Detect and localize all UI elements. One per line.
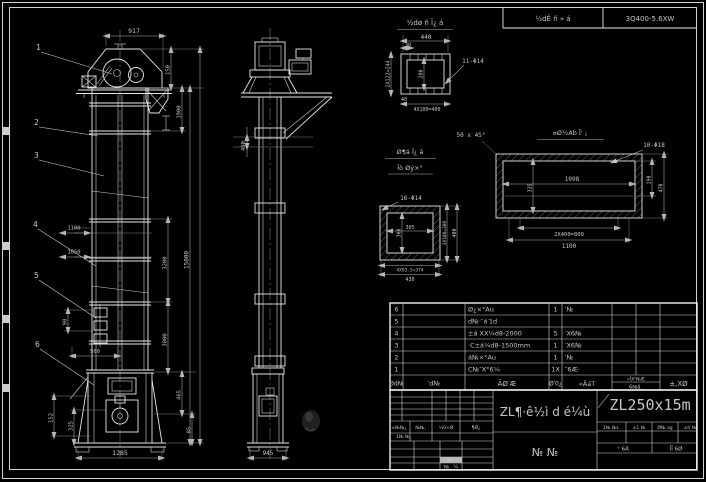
title-block-middle: ZL¶·ê½ì d é¼ù № № — [493, 405, 597, 459]
bom-material: ′X6№ — [565, 342, 582, 350]
detail-square-title-2: Īò Øý×° — [397, 163, 423, 172]
dim-mid-1: 3200 — [163, 256, 169, 269]
dim-flange-offset: 30 — [405, 43, 411, 49]
dim-side-base-width: 945 — [263, 450, 274, 457]
bom-row: 6 Ø¿×°Au 1 ′№ — [394, 306, 573, 314]
dim-square-holes-v: 3X100=300 — [442, 221, 448, 246]
cad-drawing: ½dÊ ñ » á 3Q400-5.6XW — [0, 0, 706, 482]
dim-inlet-right-2: 470 — [659, 183, 665, 192]
balloon-4: 4 — [33, 220, 38, 229]
dim-inlet-holes-h: 2X400=800 — [554, 232, 584, 238]
detail-inlet-title: ¤Ø½Ab Ī' ¡ — [553, 128, 588, 137]
dim-square-height: 400 — [452, 228, 458, 237]
rev-label-2: №№¸ — [415, 425, 427, 431]
bom-name: Ø¿×°Au — [468, 306, 494, 314]
dim-square-width: 430 — [405, 277, 414, 283]
bom-qty: 1 — [553, 354, 557, 362]
bom-name: d№·″á′1d — [468, 318, 497, 326]
sheet-border — [2, 3, 704, 479]
side-elevation-view: 490 945 — [233, 28, 332, 461]
rev-row-2: 1№ №¸ — [396, 434, 412, 440]
title-block-right: ZL250x15m 1№ №L ±1 № Ø№ ag ±h № ° 6Á ĪĪ … — [597, 394, 697, 453]
dim-head-1: 150 — [166, 65, 172, 75]
bom-name: á№×°Au — [468, 354, 496, 362]
bom-footer-note: ±,XØ — [669, 380, 688, 388]
bom-row: 1 C№″X°6¼ 1X ″6Æ· — [394, 366, 580, 374]
bom-footer-weight-top: «ĪX¹№Æ — [627, 376, 646, 383]
dim-boot-left-2: 325 — [69, 421, 75, 431]
title-block: ±№№¿ №№¸ ¼0×Ø ¶Ø¿ 1№ №¸ №¸ №¸ ¼ ZL¶·ê½ì … — [390, 390, 697, 471]
dim-square-inner-w: 305 — [405, 225, 414, 231]
bom-no: 6 — [394, 306, 398, 314]
detail-head-flange-title: ½dø ñ Ī¿ á — [407, 18, 444, 27]
bom-footer-code: ′d№ — [428, 380, 441, 388]
stamp-text: №¸ — [448, 458, 455, 464]
callout-16-phi14: 16-Φ14 — [400, 195, 422, 202]
bom-qty: 1X — [551, 366, 560, 374]
chamfer-note: 50 x 45° — [457, 132, 486, 139]
callout-10-phi18: 10-Φ18 — [643, 142, 665, 149]
rev-label-3: ¼0×Ø — [439, 424, 454, 431]
bom-row: 3 ·C±á¼d8-1500mm 1 ′X6№ — [394, 342, 582, 350]
stamp-label: №¸ ¼ — [444, 465, 458, 471]
screen-smudge — [302, 410, 320, 432]
rev-label-1: ±№№¿ — [391, 425, 407, 431]
bom-qty: 1 — [553, 342, 557, 350]
dim-flange-width: 440 — [421, 34, 432, 41]
sheet-type: № № — [532, 446, 558, 459]
bom-no: 3 — [394, 342, 398, 350]
front-elevation-view: 917 150 1900 3200 3000 15000 1100 1050 — [33, 27, 204, 461]
bom-table: 6 Ø¿×°Au 1 ′№ 5 d№·″á′1d 4 ±á XX¼d8-2000… — [389, 303, 697, 391]
bom-row: 5 d№·″á′1d — [394, 318, 497, 326]
callout-11-phi14: 11-Φ14 — [462, 58, 484, 65]
bom-no: 2 — [394, 354, 398, 362]
bom-material: ′№ — [565, 306, 573, 314]
header-strip: ½dÊ ñ » á 3Q400-5.6XW — [503, 8, 697, 29]
dim-top-width: 917 — [128, 27, 140, 35]
dim-square-holes-h: 4X93.5=374 — [396, 268, 423, 274]
bom-no: 1 — [394, 366, 398, 374]
rev-label-4: ¶Ø¿ — [472, 424, 481, 431]
balloon-3: 3 — [34, 151, 39, 160]
balloon-2: 2 — [34, 118, 39, 127]
detail-inlet-flange: 50 x 45° ¤Ø½Ab Ī' ¡ 10-Φ18 1098 325 190 … — [457, 128, 668, 250]
balloon-5: 5 — [34, 271, 39, 280]
dim-boot-left-1: 152 — [49, 413, 55, 423]
bom-footer-name: ÃØ′Æ — [498, 379, 517, 388]
bom-name: ·C±á¼d8-1500mm — [468, 342, 530, 350]
bom-footer: Ød№ ′d№ ÃØ′Æ Ø′0¿ «ÃáT «ĪX¹№Æ 6№á¸ ±,XØ — [389, 376, 688, 391]
bom-row: 2 á№×°Au 1 ′№ — [394, 354, 573, 362]
dim-flange-inner: 280 — [419, 69, 425, 78]
dim-inlet-inner-h: 325 — [528, 183, 534, 192]
bom-qty: 1 — [553, 306, 557, 314]
balloon-6: 6 — [35, 340, 40, 349]
title-block-revision-area: ±№№¿ №№¸ ¼0×Ø ¶Ø¿ 1№ №¸ №¸ №¸ ¼ — [390, 390, 493, 471]
dim-boot-right-1: 465 — [177, 390, 183, 400]
dim-feed: 500 — [90, 349, 100, 355]
dim-flange-holes-v: 2X122=244 — [386, 60, 392, 87]
model-number: ZL250x15m — [609, 396, 690, 414]
dim-left-1: 1100 — [67, 226, 80, 232]
boot-section — [70, 370, 166, 452]
approval-h3: Ø№ ag — [657, 424, 672, 431]
dim-head-2: 1900 — [177, 105, 183, 118]
dim-side-section: 490 — [241, 141, 247, 151]
bom-name: C№″X°6¼ — [468, 366, 501, 374]
dim-boot-width: 1285 — [112, 449, 128, 457]
bom-footer-material: «ÃáT — [579, 379, 595, 388]
bom-no: 5 — [394, 318, 398, 326]
bom-row: 4 ±á XX¼d8-2000 5 ′X6№ — [394, 330, 582, 338]
bom-name: ±á XX¼d8-2000 — [468, 330, 522, 338]
dim-inlet-width: 1100 — [562, 243, 577, 250]
front-dimensions: 917 150 1900 3200 3000 15000 1100 1050 — [49, 27, 205, 461]
svg-text:ĪĪ 6Ø: ĪĪ 6Ø — [670, 446, 683, 453]
approval-h1: 1№ №L — [603, 425, 620, 431]
dim-flange-holes-h: 4X100=400 — [413, 107, 440, 113]
cad-canvas[interactable]: ½dÊ ñ » á 3Q400-5.6XW — [0, 0, 706, 482]
dim-mid-2: 3000 — [163, 333, 169, 346]
detail-square-title-1: Ø¶á Ī¿ á — [397, 147, 424, 156]
balloon-1: 1 — [36, 43, 41, 52]
header-project-cell: ½dÊ ñ » á — [535, 14, 570, 23]
dim-bucket: 90 — [63, 319, 69, 326]
dim-boot-right-2: 85 — [187, 427, 193, 434]
dim-inlet-inner-w: 1098 — [565, 176, 580, 183]
detail-head-flange: ½dø ñ Ī¿ á 440 30 2X122=244 280 40 4X100… — [386, 18, 485, 113]
bom-footer-no: Ød№ — [389, 381, 404, 388]
dim-square-inner-h: 300 — [397, 228, 403, 237]
bom-footer-qty: Ø′0¿ — [549, 381, 562, 388]
bom-material: ′№ — [565, 354, 573, 362]
bom-material: ′X6№ — [565, 330, 582, 338]
approval-h4: ±h № — [684, 425, 697, 431]
bom-material: ″6Æ· — [565, 366, 580, 374]
sheet-count-left: ° 6Á — [617, 446, 629, 453]
bom-no: 4 — [394, 330, 398, 338]
dim-flange-offset-b: 40 — [401, 97, 407, 103]
header-drawing-no: 3Q400-5.6XW — [626, 15, 675, 23]
dim-total-height: 15000 — [184, 251, 191, 269]
approval-h2: ±1 № — [633, 425, 646, 431]
bom-qty: 5 — [553, 330, 557, 338]
drawing-title: ZL¶·ê½ì d é¼ù — [500, 405, 591, 419]
detail-square-flange: Ø¶á Ī¿ á Īò Øý×° 16-Φ14 305 300 3X100=30… — [380, 147, 461, 283]
dim-inlet-right-1: 190 — [647, 175, 653, 184]
